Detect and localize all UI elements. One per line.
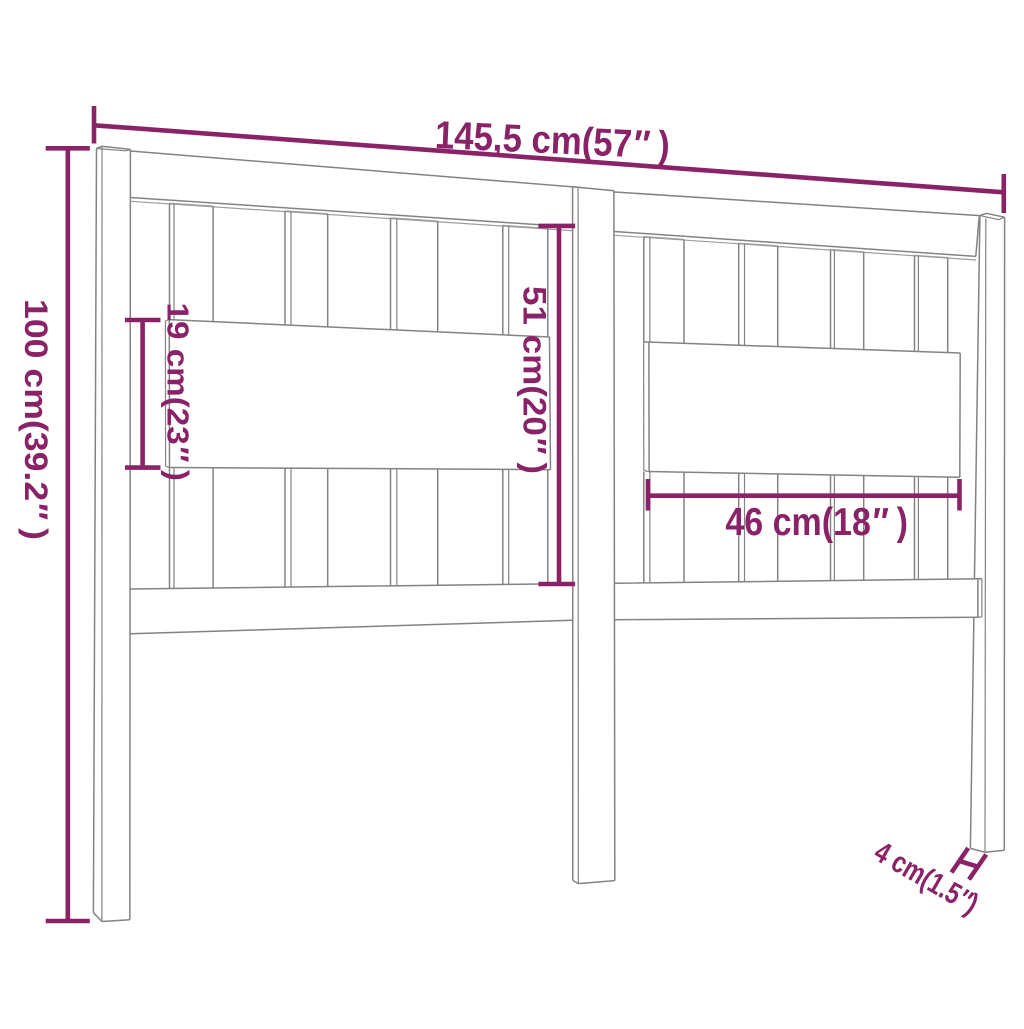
svg-text:100 cm(39.2″ ): 100 cm(39.2″ ) (18, 299, 54, 540)
svg-text:19 cm(23″ ): 19 cm(23″ ) (160, 303, 195, 482)
svg-text:46 cm(18″ ): 46 cm(18″ ) (725, 501, 908, 544)
svg-text:51 cm(20″ ): 51 cm(20″ ) (517, 286, 553, 474)
